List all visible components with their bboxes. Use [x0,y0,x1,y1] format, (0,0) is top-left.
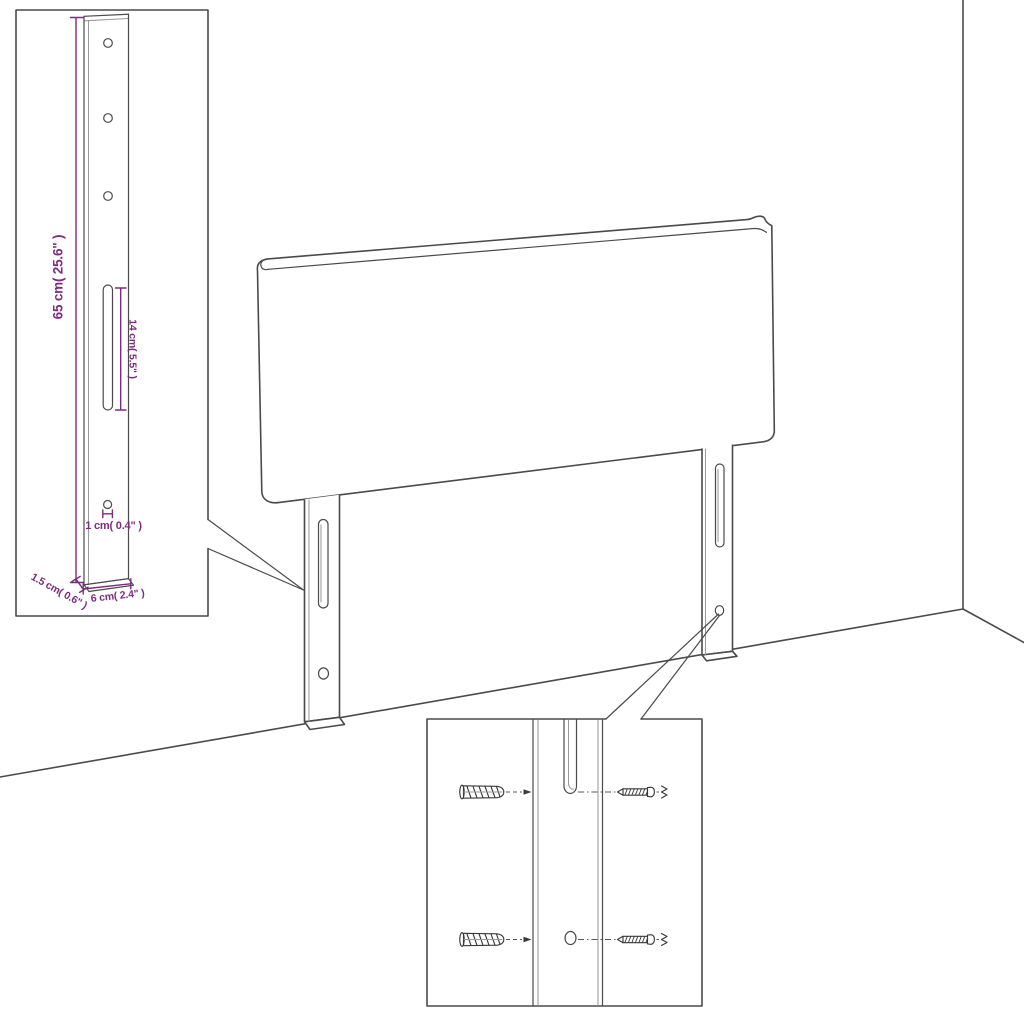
dim-hole-label: 1 cm( 0.4" ) [85,520,142,532]
callout-line [641,616,720,720]
callout-line [606,614,719,719]
headboard-panel [257,216,774,503]
dim-slot-label: 14 cm( 5.5" ) [127,319,139,379]
mounting-detail-inset [427,719,702,1006]
dim-height-label: 65 cm( 25.6" ) [51,235,66,320]
callout-leg-detail [208,520,304,591]
headboard-left-leg [305,495,345,730]
headboard-panel-outline [257,216,774,503]
headboard-right-leg [702,445,737,661]
floor-line-right [963,609,1024,643]
headboard-assembly-diagram: 65 cm( 25.6" ) 14 cm( 5.5" ) 1 cm( 0.4" … [0,0,1024,1024]
leg-detail-inset: 65 cm( 25.6" ) 14 cm( 5.5" ) 1 cm( 0.4" … [16,10,208,616]
diagram-canvas: 65 cm( 25.6" ) 14 cm( 5.5" ) 1 cm( 0.4" … [0,0,1024,1024]
callout-mounting-detail [606,614,720,719]
right-leg-body [702,445,733,656]
